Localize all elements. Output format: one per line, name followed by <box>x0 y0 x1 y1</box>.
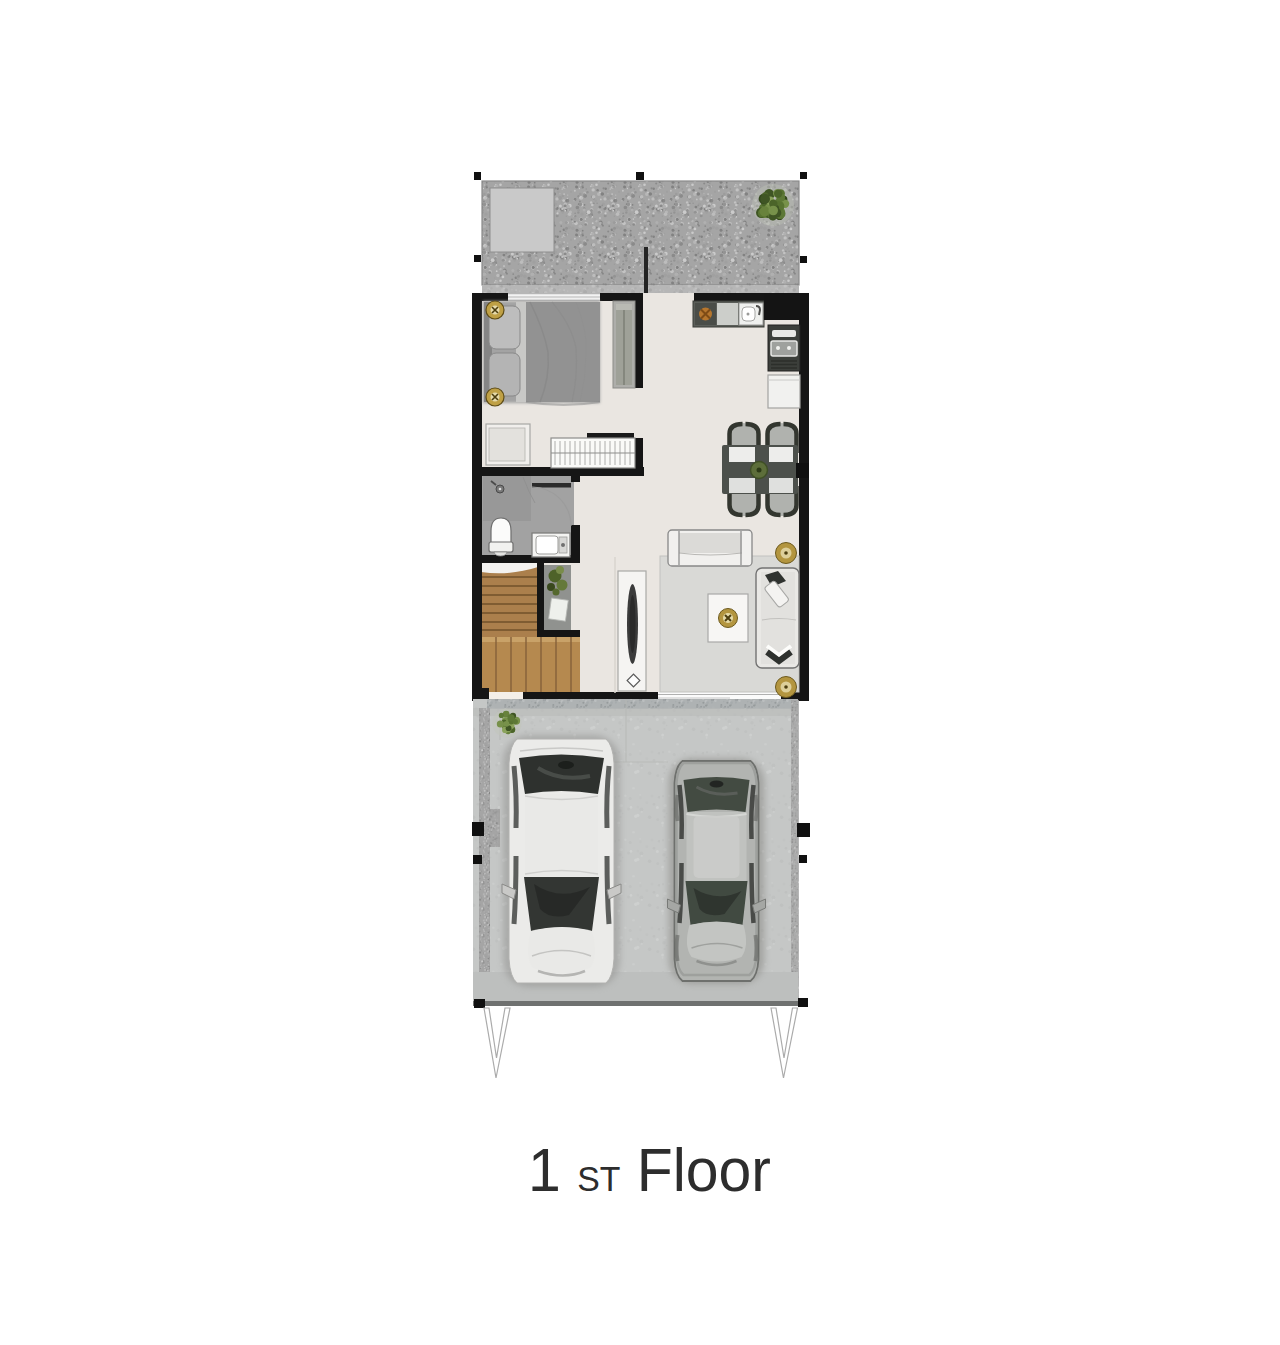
svg-text:1 ST Floor: 1 ST Floor <box>528 1136 771 1204</box>
